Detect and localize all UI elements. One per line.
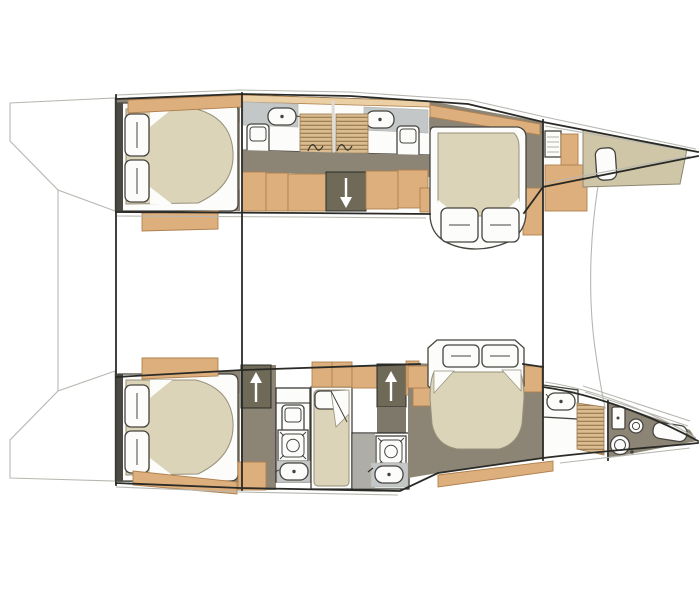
stairs-down-icon [326, 172, 366, 211]
stbd-bow-head [543, 385, 698, 460]
catamaran-floor-plan [0, 0, 700, 591]
sink-icon [268, 108, 296, 125]
floor-plan-canvas [0, 0, 700, 591]
stairs-up-icon [241, 365, 271, 408]
shower-room-aft [275, 388, 310, 482]
stbd-aft-cabin [117, 358, 240, 494]
port-aft-cabin [117, 95, 242, 231]
sink-icon [366, 111, 394, 128]
shower-icon [278, 430, 308, 461]
landing [377, 407, 406, 433]
starboard-transom-platform [10, 371, 115, 481]
sink-icon [375, 466, 403, 483]
port-hull [116, 90, 698, 249]
mattress [430, 372, 524, 449]
wardrobe-icon [288, 174, 326, 211]
wardrobe-icon [266, 173, 288, 211]
stbd-midships [238, 361, 419, 490]
port-corridor [242, 150, 430, 211]
mattress [438, 133, 519, 216]
toilet-icon [397, 126, 419, 159]
starboard-hull [116, 340, 698, 495]
single-berth [311, 387, 352, 489]
sink-icon [547, 393, 575, 410]
sink-icon [280, 463, 308, 480]
foredeck-inner-curve [591, 186, 609, 423]
wc-round-icon [611, 436, 630, 455]
bathroom-divider [333, 101, 334, 155]
step-locker [545, 131, 561, 157]
port-bathrooms [242, 95, 430, 159]
deck-locker [545, 165, 587, 211]
stbd-fwd-cabin [408, 340, 553, 487]
louvre-door-icon [577, 403, 604, 455]
port-bow-locker [543, 122, 698, 211]
shower-icon [376, 436, 406, 467]
headboard [117, 103, 123, 211]
shower-room-fwd [352, 433, 409, 489]
cockpit-bench [142, 358, 218, 379]
louvre-door-icon [336, 114, 368, 154]
wardrobe-icon [561, 134, 578, 165]
cockpit-bench [142, 211, 218, 231]
wardrobe-icon [352, 366, 377, 388]
porthole-icon [629, 419, 643, 433]
stairs-up-icon [377, 364, 406, 407]
wardrobe-icon [242, 172, 266, 211]
headboard [117, 374, 123, 481]
port-transom-platform [10, 98, 115, 211]
port-fwd-cabin [420, 101, 543, 249]
wardrobe-icon [366, 171, 398, 209]
